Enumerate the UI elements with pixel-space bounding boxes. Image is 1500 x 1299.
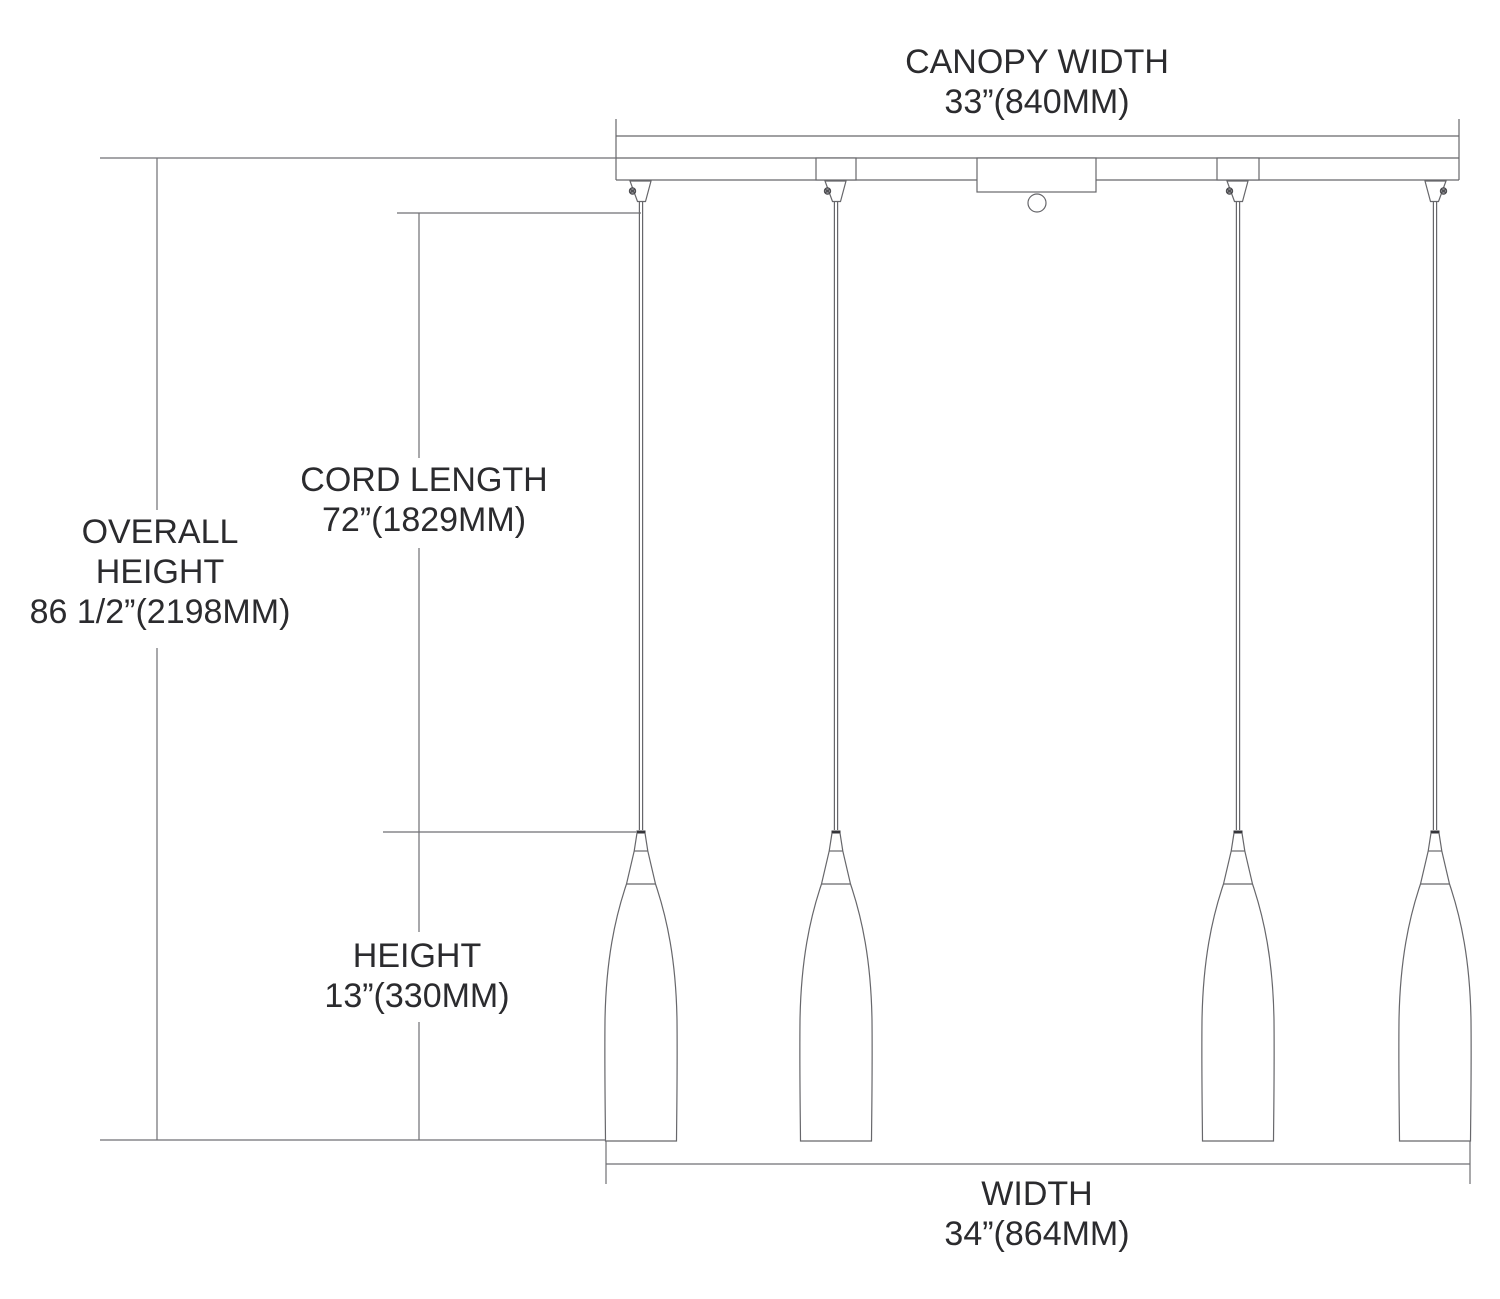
overall-height-title-line1: OVERALL bbox=[30, 512, 291, 552]
overall-height-label: OVERALL HEIGHT 86 1/2”(2198MM) bbox=[30, 512, 291, 632]
shade-height-title: HEIGHT bbox=[324, 936, 509, 976]
dimension-lines bbox=[100, 158, 1470, 1184]
canopy-width-value: 33”(840MM) bbox=[905, 82, 1169, 122]
pendant-2 bbox=[800, 181, 872, 1141]
width-label: WIDTH 34”(864MM) bbox=[944, 1174, 1129, 1254]
overall-height-value: 86 1/2”(2198MM) bbox=[30, 592, 291, 632]
pendant-3 bbox=[1202, 181, 1274, 1141]
dimension-diagram: CANOPY WIDTH 33”(840MM) OVERALL HEIGHT 8… bbox=[0, 0, 1500, 1299]
cord-length-label: CORD LENGTH 72”(1829MM) bbox=[300, 460, 547, 540]
fixture-line-drawing bbox=[0, 0, 1500, 1299]
canopy-width-label: CANOPY WIDTH 33”(840MM) bbox=[905, 42, 1169, 122]
shade-height-label: HEIGHT 13”(330MM) bbox=[324, 936, 509, 1016]
shade-height-value: 13”(330MM) bbox=[324, 976, 509, 1016]
cord-length-value: 72”(1829MM) bbox=[300, 500, 547, 540]
center-knob bbox=[1028, 194, 1046, 212]
rail-block-right bbox=[1217, 158, 1259, 180]
canopy-bar bbox=[616, 119, 1459, 212]
canopy-width-title: CANOPY WIDTH bbox=[905, 42, 1169, 82]
overall-height-title-line2: HEIGHT bbox=[30, 552, 291, 592]
pendants bbox=[605, 181, 1471, 1141]
pendant-1 bbox=[605, 181, 677, 1141]
center-mount-block bbox=[977, 158, 1096, 192]
cord-length-title: CORD LENGTH bbox=[300, 460, 547, 500]
pendant-4 bbox=[1399, 181, 1471, 1141]
rail-block-left bbox=[816, 158, 856, 180]
width-title: WIDTH bbox=[944, 1174, 1129, 1214]
width-value: 34”(864MM) bbox=[944, 1214, 1129, 1254]
